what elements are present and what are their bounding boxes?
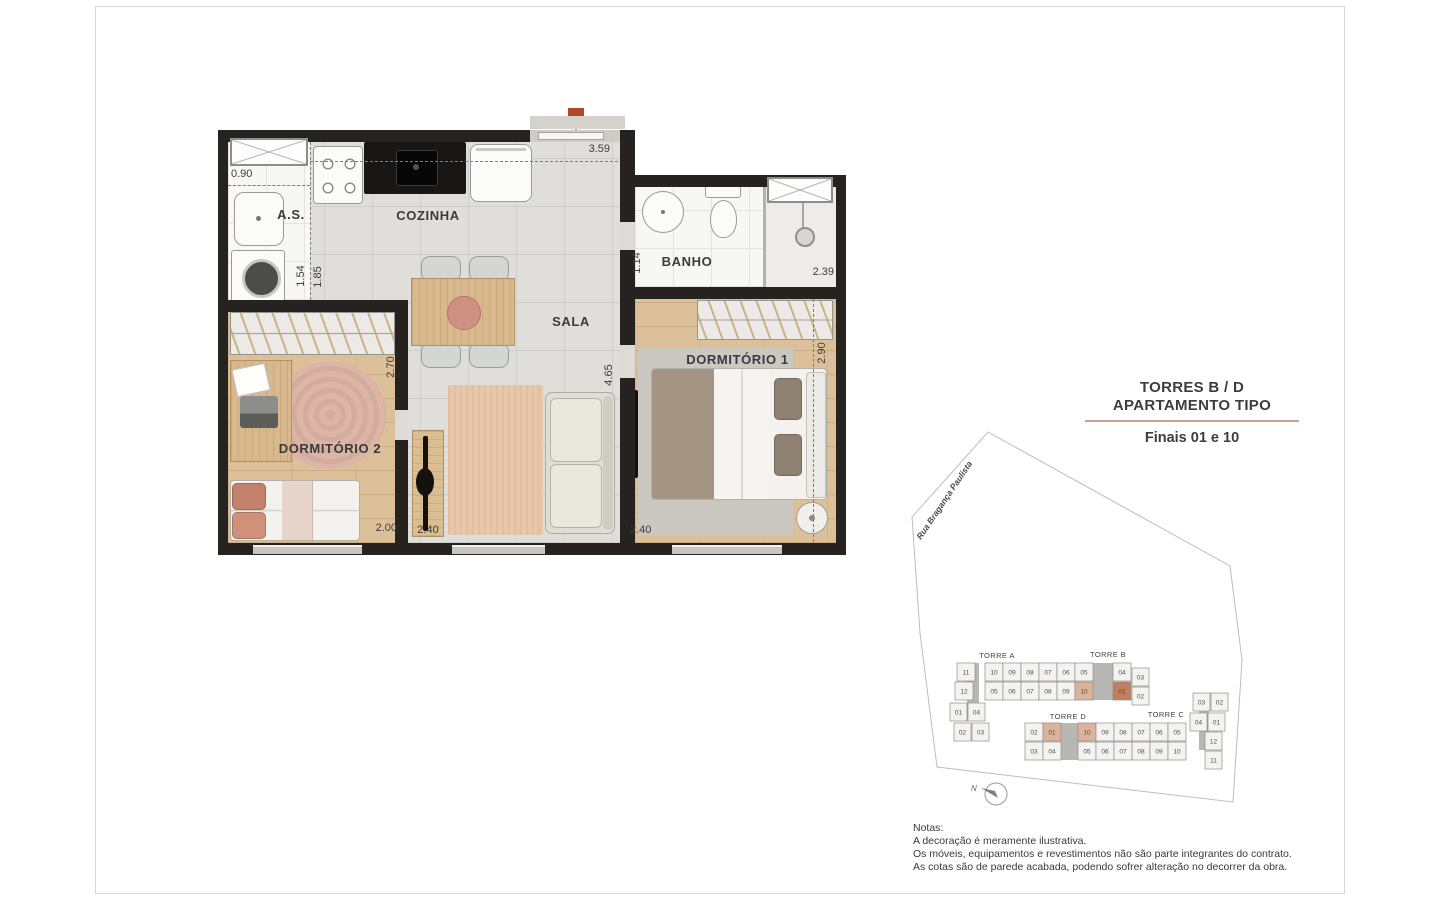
tower-label-D: TORRE D [1050,712,1087,721]
site-unit-label: 09 [1155,749,1163,756]
street-label: Rua Bragança Paulista [914,459,974,541]
notes-line-1: A decoração é meramente ilustrativa. [913,835,1373,848]
bedroom2-door-opening [395,410,408,440]
bedroom1-sheet [714,369,770,499]
site-unit-label: 01 [1118,689,1126,696]
north-compass: N [971,783,1007,805]
site-unit-label: 12 [960,689,968,696]
bedroom2-pillow-2 [232,512,266,539]
title-line-1: TORRES B / D [1085,379,1299,397]
floor-plan: A.S. COZINHA SALA BANHO DORMITÓRIO 1 DOR… [218,128,848,556]
site-unit-label: 07 [1137,730,1145,737]
site-unit-label: 01 [955,710,963,717]
dim-bedroom2-depth: 2.70 [385,349,397,385]
refrigerator [470,144,532,202]
notes-block: Notas: A decoração é meramente ilustrati… [913,822,1373,874]
wall-bath-left-a [620,187,635,222]
site-unit-label: 10 [1173,749,1181,756]
site-unit-label: 06 [1008,689,1016,696]
site-unit-label: 09 [1008,670,1016,677]
site-unit-label: 08 [1137,749,1145,756]
north-needle [981,788,998,798]
site-unit-label: 02 [959,730,967,737]
site-units: 1112010402031009080705060708060504091001… [950,663,1228,769]
site-unit-label: 02 [1216,700,1224,707]
label-bedroom1: DORMITÓRIO 1 [670,352,805,367]
dim-service-depth: 1.54 [295,258,307,294]
dim-line-service [228,185,310,186]
ceiling-fan [796,502,828,534]
site-unit-label: 03 [1137,675,1145,682]
site-unit-label: 12 [1210,739,1218,746]
bath-window [767,177,833,203]
site-unit-label: 11 [963,670,970,677]
living-rug [448,385,543,535]
tv-living-mount [416,468,434,496]
tower-label-C: TORRE C [1148,710,1185,719]
living-window [452,545,545,554]
bedroom1-door-opening [620,345,635,378]
site-unit-label: 09 [1101,730,1109,737]
notes-line-2: Os móveis, equipamentos e revestimentos … [913,848,1373,861]
sofa-back [603,396,613,530]
site-unit-label: 02 [1137,694,1145,701]
desk-laptop [240,396,278,428]
bedroom1-blanket [652,369,714,499]
bedroom2-window [253,545,362,554]
service-window [230,138,308,166]
site-unit-label: 05 [1173,730,1181,737]
bedroom2-blanket-fold [282,481,313,540]
site-unit-label: 03 [1030,749,1038,756]
dim-bedroom1-width: 2.40 [630,524,666,536]
dim-living-depth: 4.65 [603,357,615,393]
site-unit-label: 09 [1062,689,1070,696]
site-unit-label: 01 [1213,720,1221,727]
shower-head [795,227,815,247]
site-unit-label: 04 [973,710,981,717]
site-unit-label: 04 [1048,749,1056,756]
bedroom1-headboard-pillows [806,372,826,498]
site-unit-label: 07 [1026,689,1034,696]
sofa-seat-2 [550,464,602,528]
title-underline [1085,420,1299,422]
wall-bedroom1-left-b [620,378,635,543]
site-unit-label: 11 [1210,758,1217,765]
bedroom2-pillow-1 [232,483,266,510]
dim-bath-width: 2.39 [798,266,834,278]
sofa-seat-1 [550,398,602,462]
label-kitchen: COZINHA [383,208,473,223]
dim-bath-depth: 1.14 [631,245,643,281]
stove [313,146,363,204]
site-unit-label: 08 [1119,730,1127,737]
site-unit-label: 07 [1119,749,1127,756]
shower-partition [763,187,766,287]
title-line-2: APARTAMENTO TIPO [1085,397,1299,415]
north-label: N [971,784,977,793]
site-unit-label: 10 [1083,730,1091,737]
site-unit-label: 04 [1118,670,1126,677]
site-unit-label: 10 [1080,689,1088,696]
brochure-sheet: { "colors": { "entry_arrow": "#b04726", … [0,0,1440,900]
label-living: SALA [536,314,606,329]
site-unit-label: 06 [1062,670,1070,677]
site-unit-label: 08 [1026,670,1034,677]
site-unit-label: 10 [990,670,998,677]
site-unit-label: 08 [1044,689,1052,696]
tower-label-B: TORRE B [1090,650,1126,659]
wall-bedroom2-top [218,300,408,312]
site-unit-label: 04 [1195,720,1203,727]
site-unit-label: 03 [1198,700,1206,707]
label-bedroom2: DORMITÓRIO 2 [250,441,410,456]
bedroom1-window [672,545,782,554]
dim-line-bedroom1 [813,299,814,542]
label-bath: BANHO [648,254,726,269]
dim-bedroom1-depth: 2.90 [816,335,828,371]
bedroom2-wardrobe [230,312,395,355]
kitchen-faucet [413,164,419,170]
table-centerpiece [447,296,481,330]
site-unit-label: 01 [1048,730,1056,737]
label-service: A.S. [266,207,316,222]
site-unit-label: 06 [1101,749,1109,756]
site-unit-label: 02 [1030,730,1038,737]
site-plan: Rua Bragança Paulista 111201040203100908… [905,430,1245,820]
laundry-tank-drain [256,216,261,221]
refrigerator-handle [476,148,526,151]
entry-corridor-floor [530,116,625,129]
tower-label-A: TORRE A [979,651,1015,660]
site-unit-label: 07 [1044,670,1052,677]
site-unit-label: 05 [990,689,998,696]
notes-line-3: As cotas são de parede acabada, podendo … [913,861,1373,874]
wall-right [836,175,846,555]
dim-kitchen-depth: 1.85 [312,259,324,295]
wall-bedroom1-left-a [620,299,635,345]
dim-kitchen-width: 3.59 [574,143,610,155]
site-unit-label: 03 [977,730,985,737]
dim-service-width: 0.90 [231,168,267,180]
bath-sink-drain [661,210,665,214]
dim-line-kitchen [310,161,618,162]
site-unit-label: 05 [1080,670,1088,677]
toilet-bowl [710,200,737,238]
wall-left [218,130,228,555]
bedroom1-pillow-2 [774,434,802,476]
bedroom1-pillow-1 [774,378,802,420]
dim-hall-width: 2.40 [410,524,446,536]
wall-bath-bedroom1 [620,287,846,299]
dim-bedroom2-width: 2.00 [361,522,397,534]
washing-machine-drum [242,259,281,298]
site-unit-label: 05 [1083,749,1091,756]
notes-title: Notas: [913,822,1373,835]
site-unit-label: 06 [1155,730,1163,737]
entry-door-leaf [538,132,604,140]
